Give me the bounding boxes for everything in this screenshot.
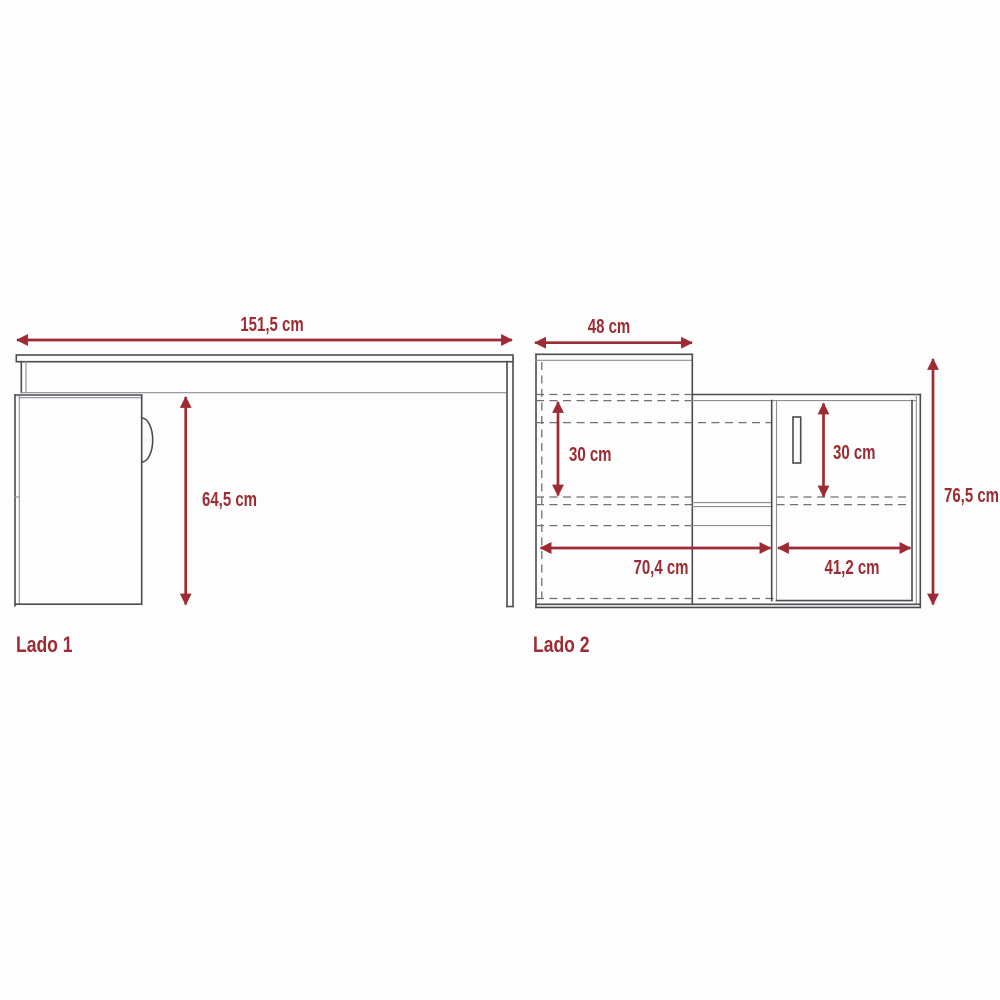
- lado1-height-label: 64,5 cm: [202, 488, 257, 511]
- lado1-door-handle-arc: [142, 418, 153, 462]
- lado2-door-height-dimension: 30 cm: [824, 404, 876, 497]
- lado1-height-dimension: 64,5 cm: [186, 397, 257, 605]
- lado2-left-width-dimension: 70,4 cm: [541, 548, 771, 579]
- lado2-door-height-label: 30 cm: [833, 441, 875, 464]
- lado2-door-handle: [793, 417, 801, 463]
- lado2-title: Lado 2: [533, 633, 590, 658]
- lado2-left-width-label: 70,4 cm: [634, 556, 689, 579]
- lado1-drawing: 151,5 cm 64,5 cm Lado 1: [15, 313, 513, 658]
- lado2-door-width-label: 41,2 cm: [825, 556, 880, 579]
- lado2-drawing: 48 cm 30 cm 30 cm 70,4 cm 41,2 cm 76,5 c…: [533, 315, 999, 658]
- lado2-hutch-height-dimension: 30 cm: [558, 402, 611, 496]
- lado1-width-dimension: 151,5 cm: [17, 313, 512, 340]
- lado2-depth-label: 48 cm: [588, 315, 630, 338]
- furniture-dimension-diagram: 151,5 cm 64,5 cm Lado 1: [0, 0, 1000, 1000]
- lado2-total-height-label: 76,5 cm: [944, 484, 999, 507]
- lado1-title: Lado 1: [16, 633, 73, 658]
- diagram-canvas: 151,5 cm 64,5 cm Lado 1: [0, 0, 1000, 1000]
- lado2-depth-dimension: 48 cm: [535, 315, 692, 343]
- lado1-width-label: 151,5 cm: [240, 313, 303, 336]
- lado2-door-width-dimension: 41,2 cm: [778, 548, 911, 579]
- lado1-desktop-slab: [16, 355, 513, 362]
- lado2-hutch-height-label: 30 cm: [569, 443, 611, 466]
- lado2-total-height-dimension: 76,5 cm: [933, 359, 999, 605]
